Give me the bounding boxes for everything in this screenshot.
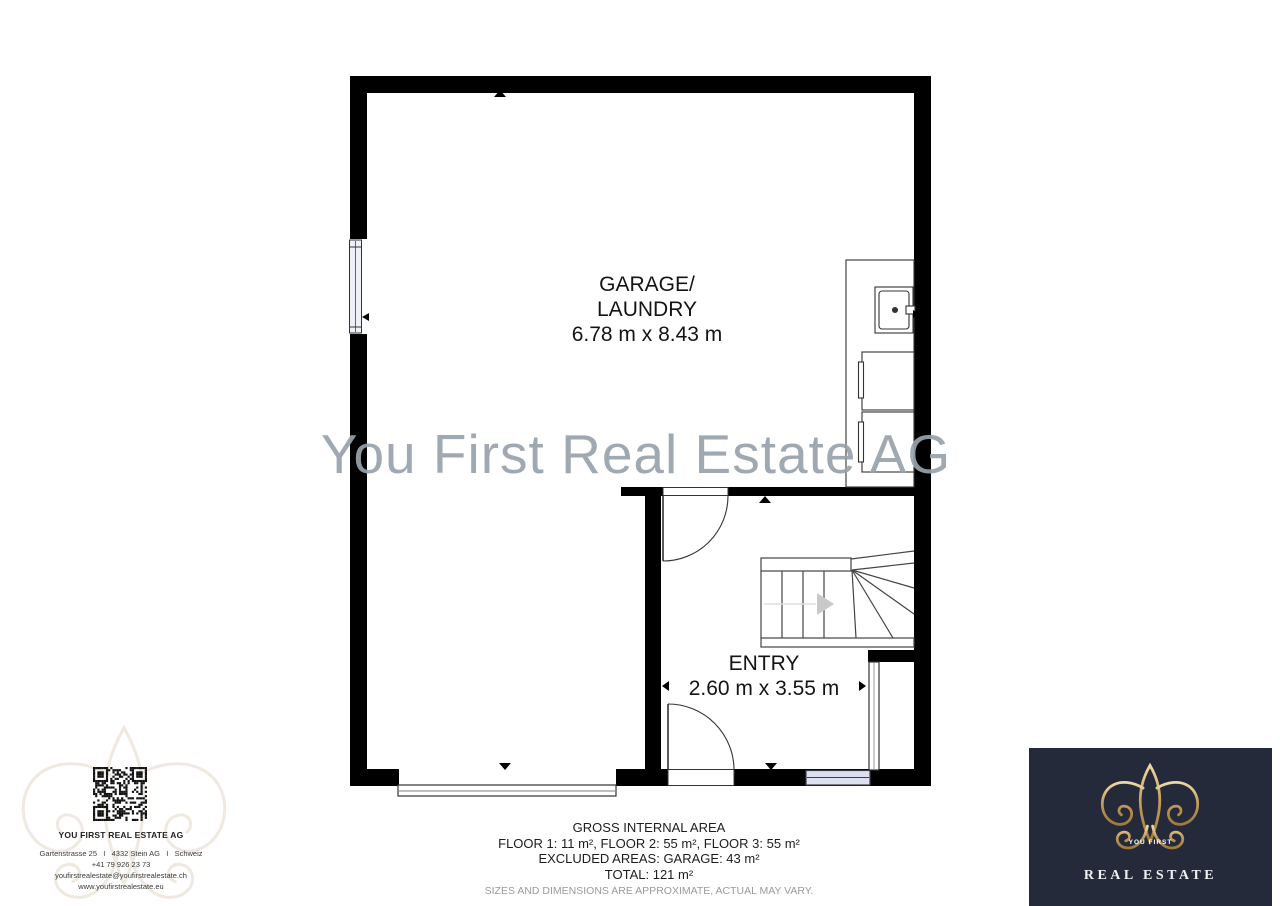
- area-summary: GROSS INTERNAL AREA FLOOR 1: 11 m², FLOO…: [485, 820, 814, 900]
- watermark-text: You First Real Estate AG: [321, 422, 951, 486]
- washer-icon: [859, 352, 915, 410]
- window-left: [348, 239, 368, 334]
- brand-tagline-top: YOU FIRST: [1129, 839, 1173, 846]
- area-summary-excluded: EXCLUDED AREAS: GARAGE: 43 m²: [485, 851, 814, 867]
- qr-code-icon: [93, 767, 147, 821]
- stair-direction-arrow-icon: [817, 593, 834, 615]
- entry-name: ENTRY: [689, 651, 840, 676]
- room-label-entry: ENTRY 2.60 m x 3.55 m: [689, 651, 840, 701]
- garage-name-line2: LAUNDRY: [572, 297, 723, 322]
- staircase: [761, 551, 914, 647]
- area-summary-disclaimer: SIZES AND DIMENSIONS ARE APPROXIMATE, AC…: [485, 884, 814, 900]
- area-summary-total: TOTAL: 121 m²: [485, 867, 814, 883]
- fleur-de-lis-icon: [1098, 762, 1202, 866]
- agency-email: youfirstrealestate@youfirstrealestate.ch: [0, 870, 251, 881]
- window-entry-bottom: [806, 771, 870, 786]
- entry-dimensions: 2.60 m x 3.55 m: [689, 676, 840, 701]
- interior-door: [663, 488, 728, 562]
- agency-name: YOU FIRST REAL ESTATE AG: [0, 830, 251, 840]
- room-label-garage: GARAGE/ LAUNDRY 6.78 m x 8.43 m: [572, 272, 723, 347]
- garage-name-line1: GARAGE/: [572, 272, 723, 297]
- brand-tagline-bottom: REAL ESTATE: [1084, 868, 1217, 884]
- garage-door: [398, 769, 616, 796]
- sink-icon: [875, 287, 915, 333]
- agency-address: Gartenstrasse 25 I 4332 Stein AG I Schwe…: [0, 848, 251, 859]
- agency-phone: +41 79 926 23 73: [0, 859, 251, 870]
- agency-card: YOU FIRST REAL ESTATE AG Gartenstrasse 2…: [0, 830, 251, 892]
- window-closet: [869, 662, 879, 770]
- garage-dimensions: 6.78 m x 8.43 m: [572, 322, 723, 347]
- area-summary-title: GROSS INTERNAL AREA: [485, 820, 814, 836]
- brand-logo: YOU FIRST REAL ESTATE: [1029, 748, 1272, 906]
- agency-website: www.youfirstrealestate.eu: [0, 881, 251, 892]
- entry-door: [668, 704, 734, 786]
- floor-plan-page: You First Real Estate AG GARAGE/ LAUNDRY…: [0, 0, 1280, 906]
- area-summary-floors: FLOOR 1: 11 m², FLOOR 2: 55 m², FLOOR 3:…: [485, 836, 814, 852]
